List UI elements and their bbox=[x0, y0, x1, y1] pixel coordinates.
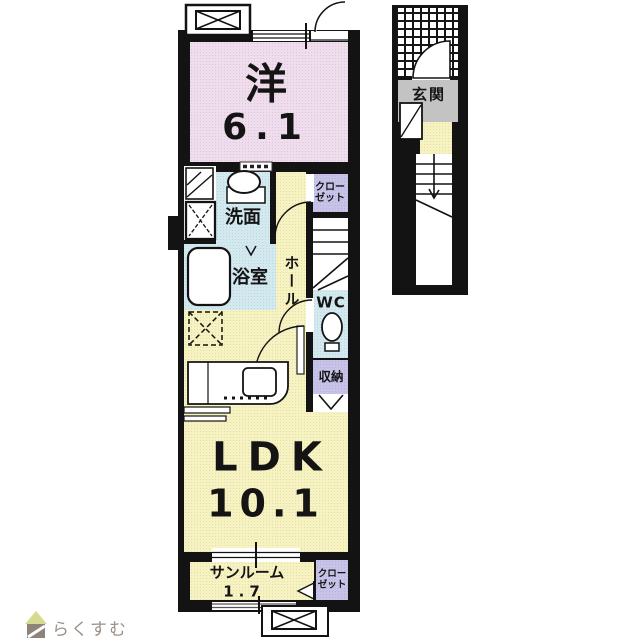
house-logo-icon bbox=[25, 611, 47, 638]
label-closet-lower: クロー ゼット bbox=[318, 569, 347, 590]
size-western-room: 6.1 bbox=[222, 108, 310, 148]
label-closet-upper: クロー ゼット bbox=[315, 182, 345, 204]
size-sunroom: 1.7 bbox=[223, 584, 265, 601]
label-wc: WC bbox=[316, 295, 346, 312]
stairwell-main bbox=[313, 218, 348, 290]
label-storage: 収納 bbox=[318, 370, 343, 384]
closet-upper-line2: ゼット bbox=[315, 193, 345, 204]
label-hall: ホール bbox=[283, 255, 300, 309]
watermark-text: らくすむ bbox=[52, 615, 128, 640]
stairwell-1f bbox=[416, 154, 452, 285]
closet-upper-line1: クロー bbox=[315, 182, 345, 193]
porch-hatch bbox=[396, 8, 458, 78]
label-entrance: 玄関 bbox=[412, 87, 446, 104]
storage-door-area bbox=[313, 394, 348, 412]
left-wall-pillar bbox=[168, 216, 178, 250]
entrance-landing bbox=[420, 122, 452, 154]
closet-lower-line1: クロー bbox=[318, 568, 347, 579]
size-ldk: 10.1 bbox=[207, 483, 325, 526]
label-sunroom: サンルーム bbox=[210, 565, 285, 582]
label-bathroom: 浴室 bbox=[232, 268, 268, 288]
label-washroom: 洗面 bbox=[225, 208, 261, 228]
utility-niche bbox=[184, 166, 216, 240]
label-ldk: LDK bbox=[212, 436, 332, 481]
closet-lower-line2: ゼット bbox=[318, 579, 347, 590]
label-western-room: 洋 bbox=[245, 60, 287, 107]
floorplan-image: 洋 6.1 洗面 浴室 ホール クロー ゼット WC 収納 LDK 10.1 サ… bbox=[0, 0, 640, 640]
